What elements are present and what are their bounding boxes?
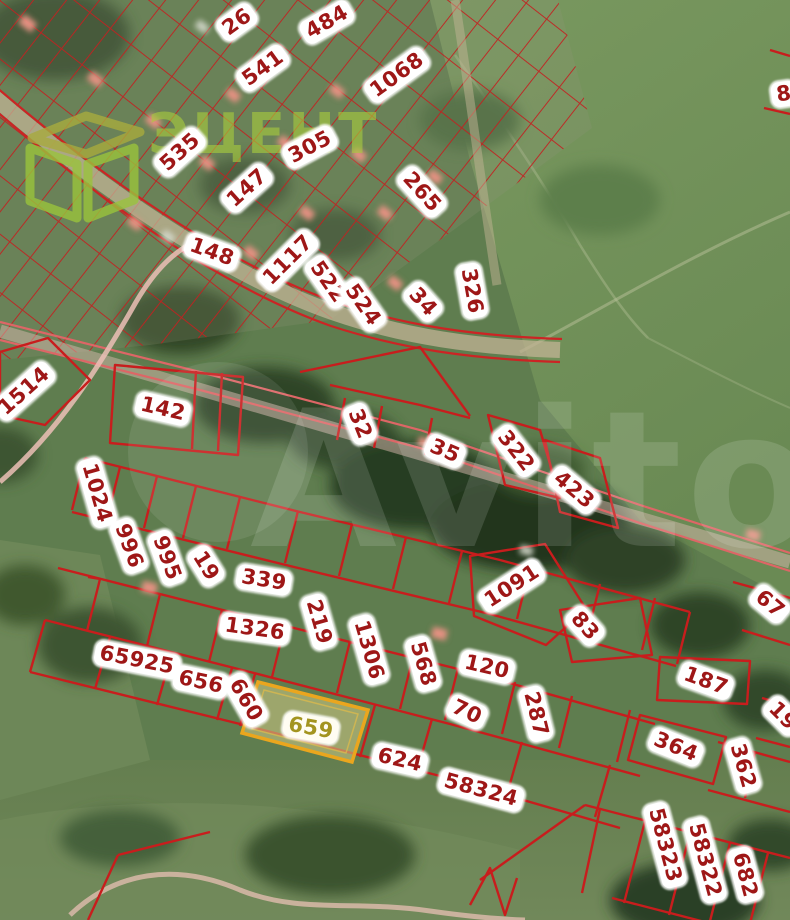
cadastral-map[interactable]: Avito ЭЦЕНТ 2654148410685353051472651481… [0,0,790,920]
cube-logo-icon [10,90,160,230]
